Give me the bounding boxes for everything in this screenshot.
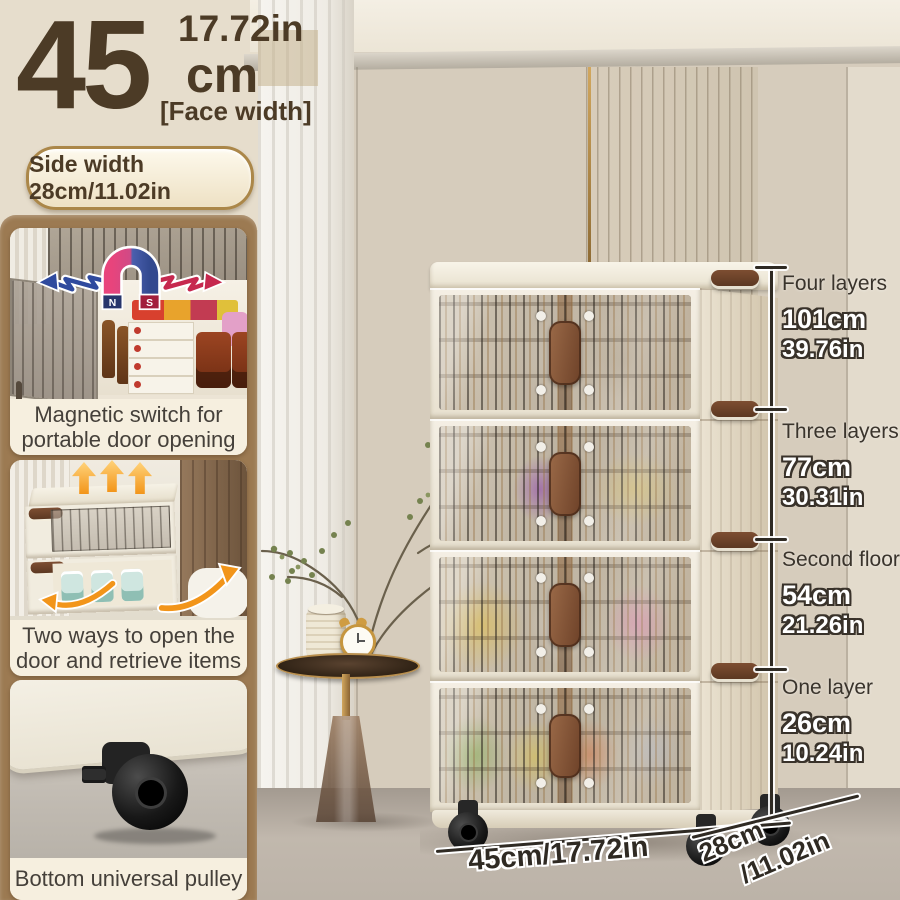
vase-cap [308,604,344,614]
dimension-tick [755,266,787,269]
layer-label: One layer [782,676,900,700]
storage-box [128,340,194,358]
door-handle-strap [549,583,581,647]
caster-brake [82,766,106,783]
storage-cabinet [430,262,778,828]
bottle [102,320,115,378]
magnet-north-label: N [109,298,116,309]
layer-height-cm: 26cm [782,708,900,739]
storage-box [128,376,194,394]
face-width-inches: 17.72in [178,8,303,50]
face-width-qualifier: [Face width] [160,96,312,127]
tier-1-door [439,295,691,410]
feature-card-two-ways: Two ways to open the door and retrieve i… [10,460,247,676]
feature-card-pulley: Bottom universal pulley [10,680,247,900]
door-handle-strap [549,714,581,778]
tier-4-door [439,688,691,803]
wheel-shadow [94,828,216,844]
cabinet-front [430,288,700,812]
tier-2-door [439,426,691,541]
side-table-stem [342,674,350,720]
coffee-bag [196,332,231,388]
feature-caption: Bottom universal pulley [10,858,247,900]
product-infographic: 45 17.72in cm [Face width] Side width 28… [0,0,900,900]
cabinet-tier-1 [430,288,700,419]
height-dimension-line [770,266,773,822]
cabinet-tier-2 [430,419,700,550]
side-width-badge: Side width 28cm/11.02in [26,146,254,210]
cabinet-tier-3 [430,550,700,681]
layer-height-in: 21.26in [782,612,900,640]
side-handle [711,401,759,417]
coffee-bag [232,332,247,388]
annotation-four-layers: Four layers 101cm 39.76in [782,272,900,364]
dimension-tick [755,408,787,411]
magnet-icon: N S [36,234,226,324]
layer-label: Three layers [782,420,900,444]
storage-box [128,358,194,376]
feature-caption: Magnetic switch for portable door openin… [10,399,247,455]
layer-label: Four layers [782,272,900,296]
feature-caption: Two ways to open the door and retrieve i… [10,620,247,676]
layer-height-cm: 101cm [782,304,900,335]
side-handle [711,663,759,679]
side-handle [711,270,759,286]
feature-panel: N S Magnetic switch for portable door op… [0,215,257,900]
feature-photo-pulley [10,680,247,858]
closed-door [51,506,171,552]
door-handle-strap [549,321,581,385]
feature-card-magnetic: N S Magnetic switch for portable door op… [10,228,247,455]
dimension-tick [755,668,787,671]
layer-height-in: 10.24in [782,740,900,768]
feature-photo-magnetic: N S [10,228,247,399]
layer-height-cm: 77cm [782,452,900,483]
door-handle-strap [549,452,581,516]
tier-3-door [439,557,691,672]
annotation-one-layer: One layer 26cm 10.24in [782,676,900,768]
curved-arrow-icon [38,576,118,616]
side-width-badge-text: Side width 28cm/11.02in [29,151,251,205]
magnet-south-label: S [146,298,153,309]
cabinet-tier-4 [430,681,700,812]
door-knob [16,381,22,399]
milk-can [121,569,144,602]
hanging-cord [588,67,591,267]
face-width-value: 45 [16,2,148,128]
feature-photo-two-ways [10,460,247,620]
caster-hub [138,780,164,806]
clock-hand [357,640,365,642]
cabinet-side-panel [700,288,778,812]
layer-height-cm: 54cm [782,580,900,611]
storage-box [128,322,194,340]
layer-label: Second floor [782,548,900,572]
annotation-three-layers: Three layers 77cm 30.31in [782,420,900,512]
curved-arrow-icon [156,556,242,614]
annotation-second-floor: Second floor 54cm 21.26in [782,548,900,640]
dimension-tick [755,538,787,541]
side-handle [711,532,759,548]
layer-height-in: 30.31in [782,484,900,512]
layer-height-in: 39.76in [782,336,900,364]
